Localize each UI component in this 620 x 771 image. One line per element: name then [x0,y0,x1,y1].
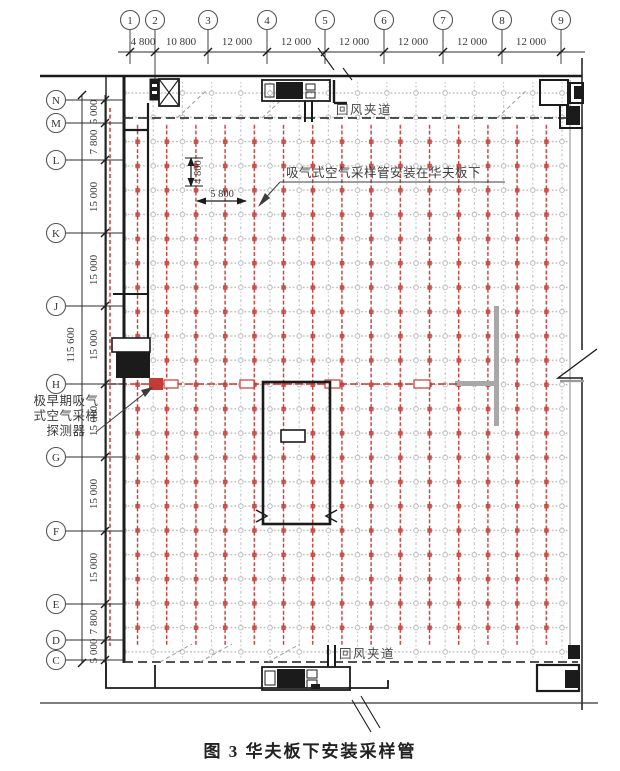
pipe-connector [164,380,178,388]
left-axis-label: L [53,155,60,167]
corridor-label-bottom: 回风夹道 [339,647,395,661]
left-dim: 15 000 [88,181,100,212]
detector-note-line2: 式空气采样 [33,408,98,423]
top-dim: 12 000 [222,36,253,48]
left-axis-grid: N M L K J H G F E D C 5 000 7 800 15 000… [47,91,125,670]
floor-plan-drawing: 1 2 3 4 5 6 7 8 9 4 800 10 800 12 000 12… [0,0,620,771]
column-block [116,352,150,378]
left-axis-label: N [52,95,60,107]
top-axis-label: 5 [322,15,328,27]
break-mark-bottom [352,700,371,732]
figure-caption: 图 3 华夫板下安装采样管 [204,741,417,761]
left-dim: 7 800 [88,609,100,634]
pipe-note-text: 吸气式空气采样管安装在华夫板下 [286,165,481,180]
top-dim: 12 000 [339,36,370,48]
left-axis-label: C [52,655,59,667]
existing-duct-horizontal [455,381,499,386]
top-axis-label: 7 [440,15,446,27]
top-axis-label: 8 [499,15,505,27]
left-dim: 15 000 [88,254,100,285]
shaft-inner-box [281,430,305,442]
detector-note-line3: 探测器 [46,424,85,438]
sampling-pipe-grid [110,108,560,646]
left-dim: 5 000 [88,638,100,663]
left-dim: 15 000 [88,552,100,583]
left-axis-label: F [53,526,59,538]
top-axis-label: 6 [381,15,387,27]
inner-dim-vertical: 4 800 [193,160,204,184]
corridor-label-top: 回风夹道 [336,103,392,117]
inner-dim-horizontal: 5 800 [210,189,234,200]
top-axis-label: 9 [558,15,564,27]
existing-duct-vertical [494,306,499,426]
figure-page: 1 2 3 4 5 6 7 8 9 4 800 10 800 12 000 12… [0,0,620,771]
pipe-connector [414,380,430,388]
top-axis-grid: 1 2 3 4 5 6 7 8 9 4 800 10 800 12 000 12… [118,11,585,81]
left-dim: 5 000 [88,99,100,124]
left-axis-label: K [52,228,60,240]
left-axis-label: M [51,118,61,130]
left-axis-label: J [54,301,59,313]
pipe-connector [240,380,254,388]
top-axis-label: 3 [205,15,211,27]
left-axis-label: D [52,635,60,647]
top-dim: 12 000 [398,36,429,48]
top-dim: 4 800 [131,36,156,48]
left-dim: 7 800 [88,129,100,154]
top-dim: 12 000 [457,36,488,48]
section-leader [343,68,352,80]
top-axis-label: 4 [264,15,270,27]
top-dim: 12 000 [516,36,547,48]
left-dim: 15 000 [88,478,100,509]
top-dim: 10 800 [166,36,197,48]
left-axis-label: G [52,452,60,464]
top-axis-label: 1 [127,15,133,27]
total-dim: 115 600 [65,327,77,363]
left-dim: 15 000 [88,329,100,360]
wall-opening [112,338,150,352]
top-axis-label: 2 [152,15,158,27]
left-axis-label: E [53,599,60,611]
left-axis-label: H [52,379,60,391]
detector-note-line1: 极早期吸气 [33,393,98,408]
top-dim: 12 000 [281,36,312,48]
break-mark-bottom [361,696,380,728]
